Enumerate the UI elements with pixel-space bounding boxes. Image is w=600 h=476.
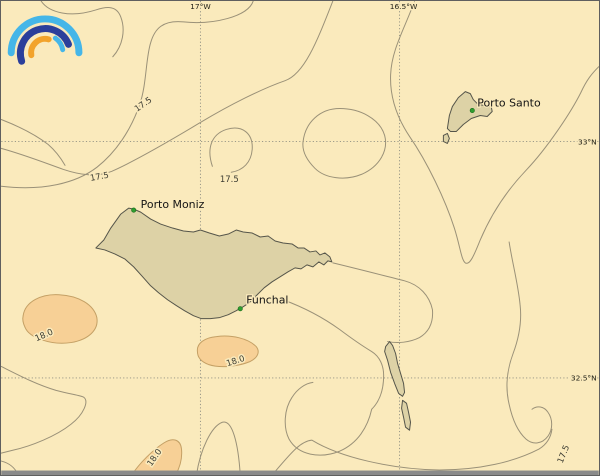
place-marker-icon	[470, 108, 474, 112]
place-label: Funchal	[246, 294, 288, 307]
place-marker-icon	[132, 208, 136, 212]
place-label: Porto Santo	[477, 97, 541, 110]
place-marker-icon	[238, 307, 242, 311]
map-canvas[interactable]: 17.5 17.5 17.5 17.5 18.0 18.0 18.0 17°W …	[1, 1, 599, 475]
map-window: 17.5 17.5 17.5 17.5 18.0 18.0 18.0 17°W …	[0, 0, 600, 476]
meridian-16-5w-label: 16.5°W	[390, 2, 418, 11]
bottom-border-strip	[1, 471, 598, 475]
meridian-17w-label: 17°W	[190, 2, 211, 11]
place-porto-moniz[interactable]: Porto Moniz	[132, 198, 205, 212]
parallel-33n-label: 33°N	[578, 137, 597, 146]
place-label: Porto Moniz	[141, 198, 205, 211]
parallel-32-5n-label: 32.5°N	[571, 373, 597, 382]
contour-label: 17.5	[220, 174, 239, 184]
islet-porto-santo-south	[443, 133, 449, 143]
